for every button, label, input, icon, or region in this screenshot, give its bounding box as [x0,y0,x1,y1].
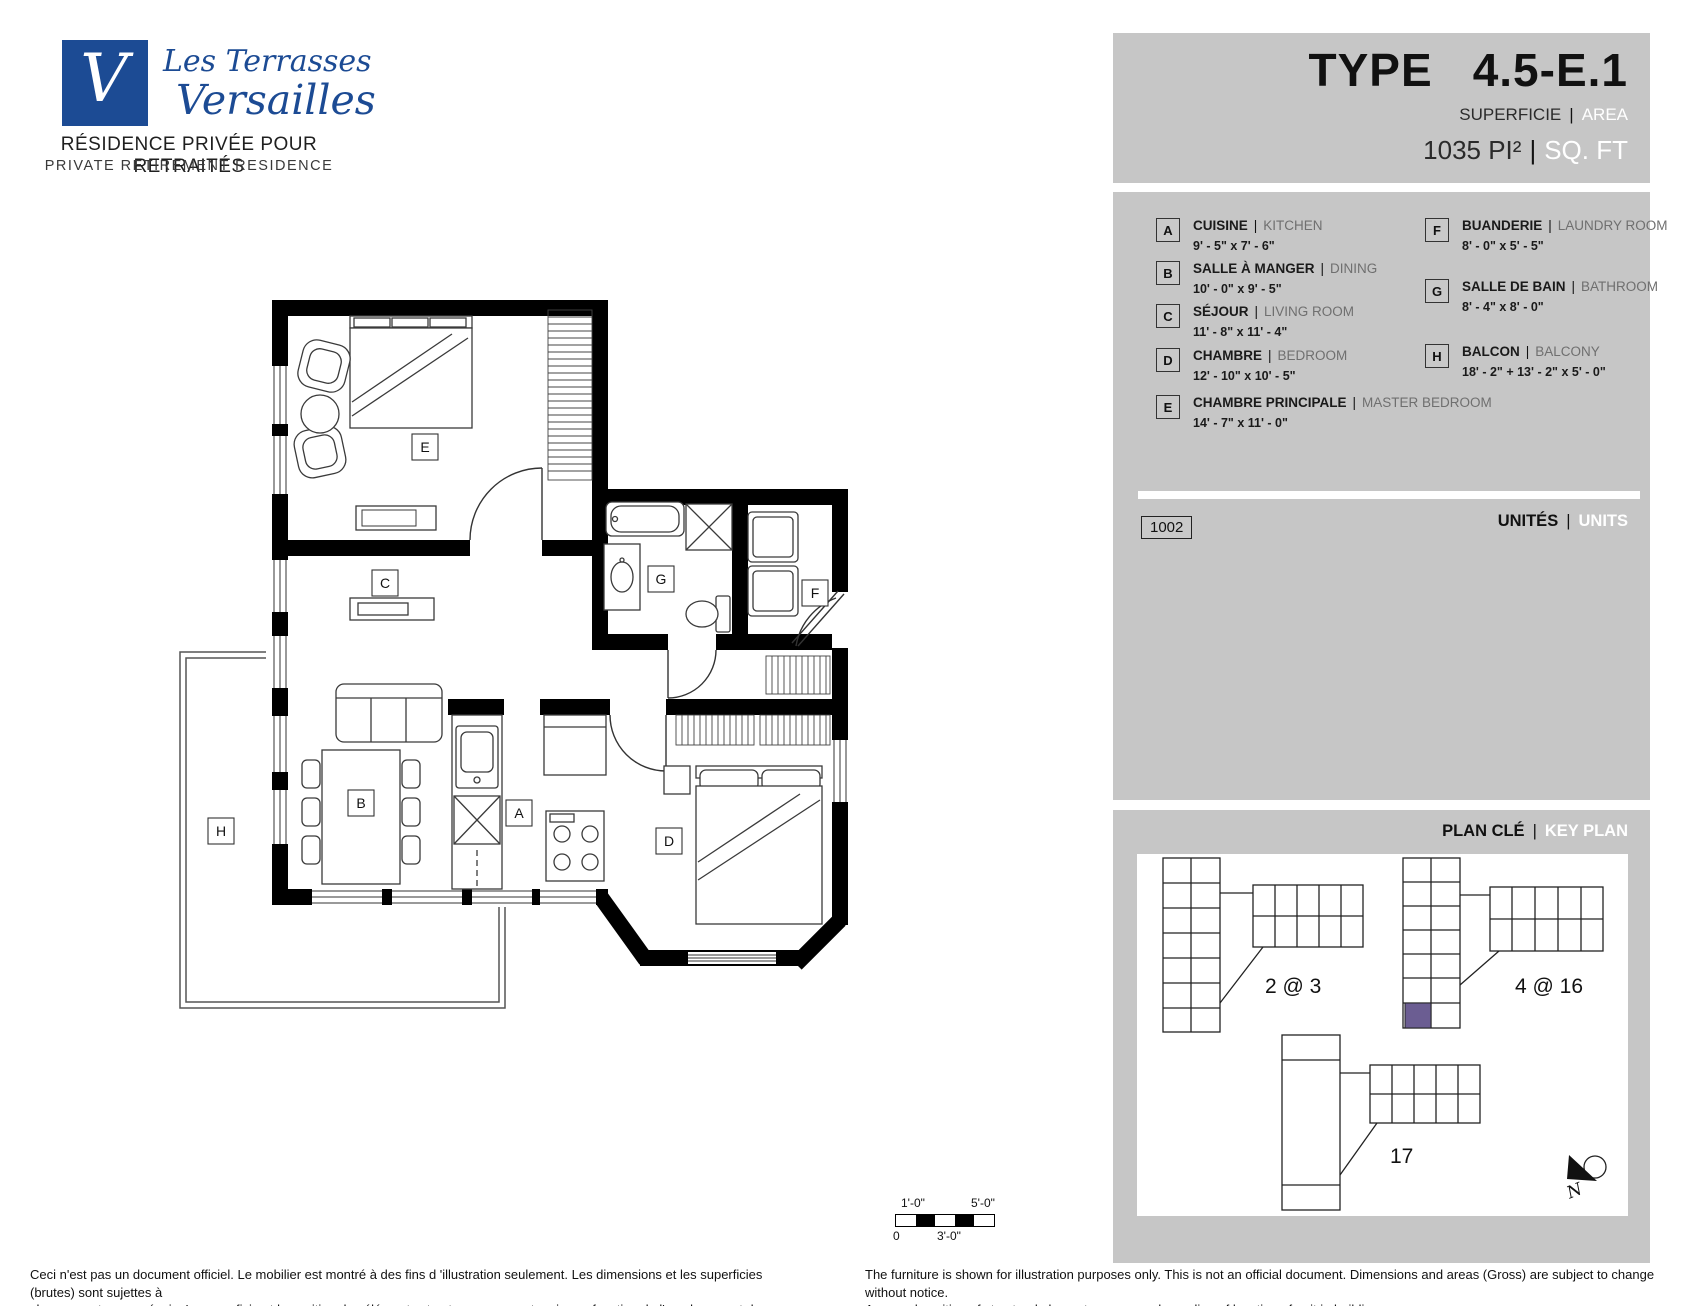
scale-label-3ft: 3'-0" [937,1229,961,1243]
svg-text:N: N [1563,1179,1586,1204]
scale-label-0: 0 [893,1229,900,1243]
bedroom-bed [696,766,822,924]
room-name-en: DINING [1330,261,1377,276]
disclaimer-fr-line2: changement sans préavis. La superficie e… [30,1301,780,1306]
svg-text:E: E [420,439,429,455]
tv-console [350,598,434,620]
legend-item-kitchen: A CUISINE|KITCHEN 9' - 5" x 7' - 6" [1156,218,1323,253]
legend-panel: A CUISINE|KITCHEN 9' - 5" x 7' - 6" B SA… [1113,192,1650,800]
area-value-row: 1035 PI²|SQ. FT [1423,135,1628,166]
unit-number-badge: 1002 [1141,516,1192,539]
bedside-table [664,766,690,794]
label-F: F [802,580,828,606]
label-C: C [372,570,398,596]
sofa [336,684,442,742]
disclaimer-fr-line1: Ceci n'est pas un document officiel. Le … [30,1266,780,1301]
room-dims: 8' - 0" x 5' - 5" [1462,239,1668,253]
label-H: H [208,818,234,844]
room-dims: 14' - 7" x 11' - 0" [1193,416,1492,430]
building-cluster-2-3 [1163,858,1363,1032]
dining-table [302,750,420,884]
legend-item-bathroom: G SALLE DE BAIN|BATHROOM 8' - 4" x 8' - … [1425,279,1658,314]
key-plan-title: PLAN CLÉ|KEY PLAN [1442,822,1628,841]
floor-plan-svg: E C B A D G F H [160,290,930,1090]
bedroom-closets-hatch [676,715,830,745]
unit-type-title: TYPE4.5-E.1 [1309,47,1628,93]
area-label-en: AREA [1582,105,1628,124]
room-name-fr: BUANDERIE [1462,218,1542,233]
room-name-fr: CHAMBRE PRINCIPALE [1193,395,1347,410]
room-dims: 12' - 10" x 10' - 5" [1193,369,1347,383]
separator: | [1521,135,1544,165]
svg-text:G: G [656,571,667,587]
key-plan-title-en: KEY PLAN [1545,822,1628,840]
type-value: 4.5-E.1 [1473,47,1628,93]
type-label: TYPE [1309,47,1433,93]
svg-text:F: F [811,585,820,601]
key-plan-drawing: 2 @ 3 4 @ 16 17 N [1137,854,1628,1216]
master-closet-hatch [548,310,592,480]
key-plan-title-fr: PLAN CLÉ [1442,822,1525,840]
room-letter-badge: B [1156,261,1180,285]
kitchen-fridge-stove [544,715,606,881]
units-title: UNITÉS|UNITS [1498,512,1628,531]
logo-name-line2: Versailles [176,76,376,124]
disclaimer-en-line1: The furniture is shown for illustration … [865,1266,1655,1301]
master-bed [350,316,472,428]
area-value-en: SQ. FT [1544,135,1628,165]
disclaimer-french: Ceci n'est pas un document officiel. Le … [30,1266,780,1306]
scale-bar-graphic [895,1214,995,1227]
label-B: B [348,790,374,816]
building-cluster-17 [1282,1035,1480,1210]
floor-plan-drawing: E C B A D G F H [160,290,930,1095]
cluster-label-4-16: 4 @ 16 [1515,975,1583,998]
area-label-fr: SUPERFICIE [1459,105,1561,124]
room-letter-badge: C [1156,304,1180,328]
room-name-fr: CHAMBRE [1193,348,1262,363]
room-letter-badge: F [1425,218,1449,242]
bathtub [606,502,684,536]
legend-item-balcony: H BALCON|BALCONY 18' - 2" + 13' - 2" x 5… [1425,344,1606,379]
building-cluster-4-16 [1403,858,1603,1028]
vanity-sink [604,544,640,610]
area-label-row: SUPERFICIE|AREA [1459,105,1628,125]
floor-plan-sheet: V Les Terrasses Versailles RÉSIDENCE PRI… [0,0,1690,1306]
units-label-en: UNITS [1579,512,1629,530]
cluster-label-2-3: 2 @ 3 [1265,975,1321,998]
room-name-fr: SALLE À MANGER [1193,261,1315,276]
windows-bottom-wall [312,887,596,907]
shower [686,504,732,550]
svg-text:C: C [380,575,390,591]
logo-tagline-en: PRIVATE RETIREMENT RESIDENCE [34,158,344,174]
room-name-en: BALCONY [1535,344,1600,359]
room-letter-badge: E [1156,395,1180,419]
legend-item-master-bedroom: E CHAMBRE PRINCIPALE|MASTER BEDROOM 14' … [1156,395,1492,430]
room-letter-badge: D [1156,348,1180,372]
svg-text:B: B [356,795,365,811]
scale-bar: 1'-0" 5'-0" 0 3'-0" [893,1196,1003,1248]
units-label-fr: UNITÉS [1498,512,1559,530]
disclaimer-english: The furniture is shown for illustration … [865,1266,1655,1306]
cluster-label-17: 17 [1390,1145,1413,1168]
room-dims: 10' - 0" x 9' - 5" [1193,282,1377,296]
kitchen-peninsula [452,715,502,889]
legend-item-bedroom: D CHAMBRE|BEDROOM 12' - 10" x 10' - 5" [1156,348,1347,383]
linen-closet-hatch [766,656,830,694]
logo-v-glyph: V [80,40,128,117]
label-A: A [506,800,532,826]
legend-item-living: C SÉJOUR|LIVING ROOM 11' - 8" x 11' - 4" [1156,304,1354,339]
north-arrow-icon: N [1563,1155,1606,1204]
room-name-fr: BALCON [1462,344,1520,359]
logo-mark: V [62,40,148,126]
room-letter-badge: G [1425,279,1449,303]
svg-text:D: D [664,833,674,849]
scale-label-1ft: 1'-0" [901,1196,925,1210]
legend-item-dining: B SALLE À MANGER|DINING 10' - 0" x 9' - … [1156,261,1377,296]
key-plan-svg: 2 @ 3 4 @ 16 17 N [1137,854,1628,1216]
units-divider [1138,491,1640,499]
highlighted-unit [1405,1003,1431,1028]
room-letter-badge: A [1156,218,1180,242]
label-E: E [412,434,438,460]
room-dims: 11' - 8" x 11' - 4" [1193,325,1354,339]
room-dims: 8' - 4" x 8' - 0" [1462,300,1658,314]
scale-label-5ft: 5'-0" [971,1196,995,1210]
room-dims: 18' - 2" + 13' - 2" x 5' - 0" [1462,365,1606,379]
separator: | [1561,105,1581,124]
logo-name-line1: Les Terrasses [163,44,372,79]
room-name-en: LIVING ROOM [1264,304,1354,319]
washer-dryer [748,512,798,616]
svg-text:A: A [514,805,524,821]
room-dims: 9' - 5" x 7' - 6" [1193,239,1323,253]
svg-text:H: H [216,823,226,839]
legend-item-laundry: F BUANDERIE|LAUNDRY ROOM 8' - 0" x 5' - … [1425,218,1668,253]
room-letter-badge: H [1425,344,1449,368]
toilet [686,596,730,632]
room-name-fr: SALLE DE BAIN [1462,279,1566,294]
room-name-fr: SÉJOUR [1193,304,1249,319]
room-name-en: LAUNDRY ROOM [1558,218,1668,233]
master-armchairs [292,337,354,481]
wall-diagonal [600,896,646,960]
room-name-fr: CUISINE [1193,218,1248,233]
room-name-en: BATHROOM [1581,279,1658,294]
label-G: G [648,566,674,592]
area-value-fr: 1035 PI² [1423,135,1521,165]
room-name-en: MASTER BEDROOM [1362,395,1492,410]
type-header-panel: TYPE4.5-E.1 SUPERFICIE|AREA 1035 PI²|SQ.… [1113,33,1650,183]
key-plan-panel: PLAN CLÉ|KEY PLAN [1113,810,1650,1263]
wall-chamfer [796,920,840,964]
room-name-en: BEDROOM [1278,348,1348,363]
label-D: D [656,828,682,854]
disclaimer-en-line2: Area and position of structural elements… [865,1301,1655,1306]
room-name-en: KITCHEN [1263,218,1322,233]
